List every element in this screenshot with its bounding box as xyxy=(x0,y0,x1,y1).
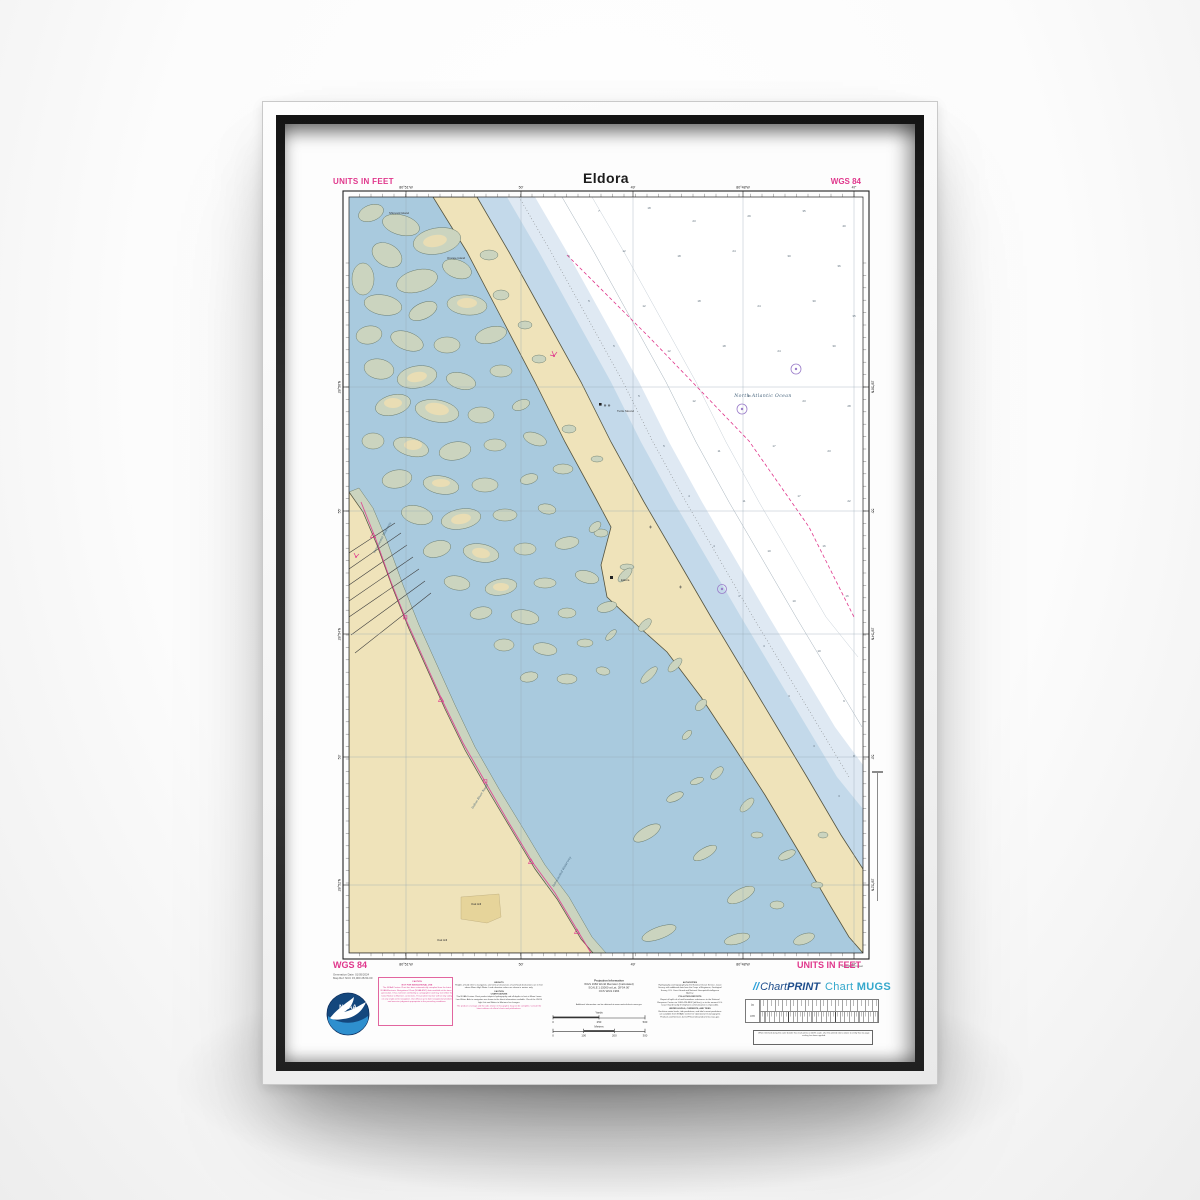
depth-sounding: 10 xyxy=(817,649,821,653)
marsh-island xyxy=(362,433,384,449)
latitude-label: 55' xyxy=(871,509,875,514)
marsh-island xyxy=(591,456,603,462)
marsh-island xyxy=(770,901,784,909)
longitude-label: 80°48'W xyxy=(736,186,750,190)
map-label: Oak Hill xyxy=(471,902,481,906)
depth-sounding: 36 xyxy=(837,264,841,268)
depth-sounding: 12 xyxy=(692,399,696,403)
latitude-label: 28°54'N xyxy=(871,628,875,641)
depth-sounding: 22 xyxy=(847,499,851,503)
ruler-inch-scale xyxy=(760,1000,878,1012)
scalebar-tick-label: 250 xyxy=(597,1020,602,1024)
ruler-unit-cm: cm xyxy=(749,1013,756,1019)
latitude-label: 28°52'N xyxy=(871,879,875,892)
map-label: Turtle Mound xyxy=(617,409,634,413)
print-scale-ruler: in cm xyxy=(745,999,879,1023)
marsh-island xyxy=(553,464,573,474)
depth-sounding: 12 xyxy=(642,304,646,308)
frame-float-gap: UNITS IN FEET Eldora WGS 84 xyxy=(276,115,924,1071)
depth-sounding: 30 xyxy=(812,299,816,303)
longitude-label: 49' xyxy=(631,963,636,967)
longitude-label: 80°51'W xyxy=(399,963,413,967)
depth-sounding: 10 xyxy=(767,549,771,553)
scalebar-top-label: Yards xyxy=(595,1011,603,1015)
depth-sounding: 24 xyxy=(777,349,781,353)
depth-sounding: 18 xyxy=(697,299,701,303)
marsh-island xyxy=(472,478,498,492)
scalebar-tick-label: 300 xyxy=(643,1033,648,1037)
marsh-island xyxy=(818,832,828,838)
map-label: Orange Island xyxy=(447,256,466,260)
picture-frame: UNITS IN FEET Eldora WGS 84 xyxy=(262,101,938,1085)
depth-sounding: 12 xyxy=(667,349,671,353)
marsh-island xyxy=(434,337,460,353)
notes-authorities: AUTHORITIES Hydrography and topography b… xyxy=(657,978,723,1105)
margin-scale-bar xyxy=(877,771,878,901)
island-dry-patch xyxy=(384,398,402,408)
depth-sounding: 17 xyxy=(772,444,776,448)
marsh-island xyxy=(558,608,576,618)
scalebar-tick-label: 0 xyxy=(552,1020,554,1024)
depth-sounding: 16 xyxy=(845,594,849,598)
notes-heights: HEIGHTS Heights of land refer to navigat… xyxy=(455,978,543,1078)
longitude-label: 50' xyxy=(519,963,524,967)
depth-sounding: 30 xyxy=(832,344,836,348)
depth-sounding: 35 xyxy=(852,314,856,318)
depth-sounding: 16 xyxy=(822,544,826,548)
noaa-logo: NOAA xyxy=(326,992,370,1036)
marsh-island xyxy=(468,407,494,423)
scalebar-tick-label: 100 xyxy=(581,1033,586,1037)
depth-sounding: 18 xyxy=(722,344,726,348)
marsh-island xyxy=(532,355,546,363)
longitude-label: 80°51'W xyxy=(399,186,413,190)
depth-sounding: 18 xyxy=(647,206,651,210)
longitude-label: 50' xyxy=(519,186,524,190)
scale-bars: Yards0250500Meters0100200300 xyxy=(549,1009,669,1037)
depth-sounding: 24 xyxy=(757,304,761,308)
chart-datum-bottom: WGS 84 xyxy=(333,960,367,970)
nautical-chart-map: 7182329354061218243036512182430355121824… xyxy=(335,183,877,967)
depth-sounding: 12 xyxy=(622,249,626,253)
svg-text:NOAA: NOAA xyxy=(339,1005,357,1011)
latitude-label: 53' xyxy=(871,755,875,760)
marsh-island xyxy=(562,425,576,433)
scalebar-tick-label: 200 xyxy=(612,1033,617,1037)
island-dry-patch xyxy=(432,479,450,487)
scalebar-tick-label: 0 xyxy=(552,1033,554,1037)
depth-sounding: 11 xyxy=(742,499,745,503)
depth-sounding: 29 xyxy=(747,214,751,218)
caution-box: CAUTION NOT FOR NAVIGATIONAL USE The NOA… xyxy=(378,977,453,1026)
marsh-island xyxy=(557,674,577,684)
map-label: Oak Hill xyxy=(437,938,447,942)
oak-hill-built-up-area xyxy=(461,894,501,923)
longitude-label: 47' xyxy=(852,186,857,190)
depth-sounding: 30 xyxy=(787,254,791,258)
island-dry-patch xyxy=(404,440,422,450)
depth-sounding: 35 xyxy=(802,209,806,213)
marsh-island xyxy=(514,543,536,555)
marsh-island xyxy=(518,321,532,329)
depth-sounding: 23 xyxy=(802,399,806,403)
longitude-label: 49' xyxy=(631,186,636,190)
chartprint-slashes-icon: // xyxy=(753,981,759,993)
marsh-island xyxy=(480,250,498,260)
marsh-island xyxy=(490,365,512,377)
depth-sounding: 23 xyxy=(692,219,696,223)
latitude-label: 28°56'N xyxy=(338,380,342,393)
ruler-cm-scale xyxy=(760,1012,878,1023)
latitude-label: 28°56'N xyxy=(871,381,875,394)
product-photo: UNITS IN FEET Eldora WGS 84 xyxy=(0,0,1200,1200)
marsh-island xyxy=(352,263,374,295)
marsh-island xyxy=(534,578,556,588)
latitude-label: 28°54'N xyxy=(338,627,342,640)
chartprint-logo: //ChartPRINT xyxy=(753,981,820,993)
chart-units-note-bottom: UNITS IN FEET xyxy=(797,960,861,970)
depth-sounding: 17 xyxy=(797,494,801,498)
ruler-unit-inches: in xyxy=(749,1002,756,1008)
depth-sounding: 28 xyxy=(847,404,851,408)
latitude-label: 53' xyxy=(338,754,342,759)
map-label: Eldora xyxy=(621,578,630,582)
longitude-label: 80°48'W xyxy=(736,963,750,967)
marsh-island xyxy=(577,639,593,647)
ruler-note-box: When trimmed along the outer border this… xyxy=(753,1030,873,1045)
marsh-island xyxy=(494,639,514,651)
latitude-label: 55' xyxy=(338,508,342,513)
depth-sounding: 11 xyxy=(717,449,720,453)
marsh-island xyxy=(484,439,506,451)
chartmugs-logo: Chart MUGS xyxy=(825,981,891,993)
marsh-island xyxy=(493,290,509,300)
map-label: Shipyard Island xyxy=(389,211,409,215)
island-dry-patch xyxy=(457,298,477,308)
depth-sounding: 18 xyxy=(677,254,681,258)
marsh-island xyxy=(751,832,763,838)
latitude-label: 28°52'N xyxy=(338,878,342,891)
sea-label: North Atlantic Ocean xyxy=(733,393,792,399)
canvas-print: UNITS IN FEET Eldora WGS 84 xyxy=(285,124,915,1062)
depth-sounding: 23 xyxy=(827,449,831,453)
scalebar-bottom-label: Meters xyxy=(594,1024,604,1028)
depth-sounding: 10 xyxy=(792,599,796,603)
island-dry-patch xyxy=(493,583,509,591)
depth-sounding: 40 xyxy=(842,224,846,228)
depth-sounding: 24 xyxy=(732,249,736,253)
scalebar-tick-label: 500 xyxy=(643,1020,648,1024)
